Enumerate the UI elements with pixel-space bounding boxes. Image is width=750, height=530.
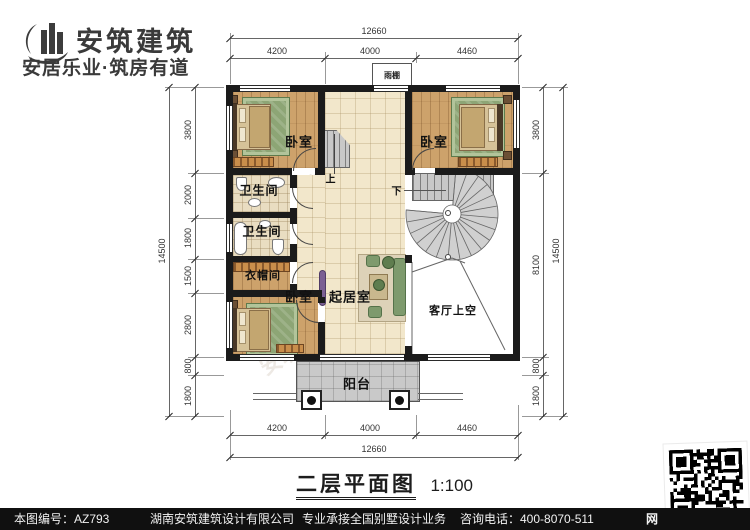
ext-line (522, 173, 549, 174)
door-arc (292, 224, 313, 245)
dresser (276, 344, 304, 353)
wall (315, 168, 325, 175)
dim-value: 14500 (157, 238, 167, 263)
bed-headboard (497, 104, 503, 151)
door-arc (292, 188, 313, 209)
dim-value: 8100 (531, 255, 541, 275)
title-scale: 1:100 (430, 476, 473, 495)
stair-guide-line (334, 134, 335, 174)
railing-line (418, 399, 463, 400)
page-title: 二层平面图 (296, 473, 416, 500)
dim-value: 4200 (267, 423, 287, 433)
window (374, 85, 408, 92)
armchair (366, 255, 380, 267)
ext-line (522, 375, 549, 376)
drawing-sheet: 安筑建筑 安居乐业·筑房有道 安筑建筑 安筑建筑 安筑建筑 hmaz (0, 0, 750, 530)
dim-value: 1500 (183, 266, 193, 286)
wall (318, 92, 325, 168)
wall (405, 255, 412, 263)
brand-tagline: 安居乐业·筑房有道 (22, 53, 189, 80)
nightstand (503, 95, 512, 104)
room-label-bedroom-tl: 卧室 (285, 132, 313, 151)
pillow (239, 127, 246, 142)
wall (405, 92, 412, 168)
pillow (488, 108, 495, 123)
dim-value: 800 (183, 358, 193, 373)
dim-line (230, 38, 518, 39)
title-block: 二层平面图 1:100 (296, 468, 473, 498)
room-label-bath-lower: 卫生间 (242, 223, 281, 240)
railing-line (253, 393, 296, 394)
room-label-bedroom-tr: 卧室 (420, 132, 448, 151)
window (320, 354, 404, 361)
hotline: 咨询电话：400-8070-511 (460, 508, 594, 530)
dim-value: 2000 (183, 185, 193, 205)
room-label-void: 客厅上空 (429, 302, 477, 318)
window (428, 354, 490, 361)
dim-value: 2800 (183, 315, 193, 335)
dim-value: 12660 (361, 26, 386, 36)
window (226, 224, 233, 252)
window (240, 354, 294, 361)
plant (373, 279, 385, 291)
dim-line (230, 457, 518, 458)
wall (318, 297, 325, 303)
dim-value: 1800 (183, 386, 193, 406)
wall (290, 175, 297, 188)
column (389, 390, 410, 410)
toilet (272, 239, 284, 255)
armchair (368, 306, 382, 318)
blanket (461, 107, 485, 148)
dim-value: 3800 (183, 120, 193, 140)
dim-value: 1800 (183, 228, 193, 248)
dim-value: 4460 (457, 423, 477, 433)
window (226, 106, 233, 150)
nightstand (503, 151, 512, 160)
stair-down-label: 下 (392, 183, 403, 198)
dim-value: 14500 (551, 238, 561, 263)
wardrobe (232, 157, 274, 167)
wall (405, 346, 412, 361)
wall (226, 256, 297, 262)
spiral-stair-fan (406, 168, 498, 260)
pillow (239, 312, 246, 326)
blanket (249, 310, 269, 350)
dim-line (230, 435, 518, 436)
window (226, 302, 233, 348)
dim-value: 800 (531, 358, 541, 373)
railing-line (253, 399, 296, 400)
dim-line (169, 87, 170, 416)
dim-line (543, 87, 544, 416)
railing-line (418, 393, 463, 394)
service-text: 专业承接全国别墅设计业务 (302, 508, 446, 530)
room-label-cloak: 衣帽间 (245, 267, 281, 283)
plant (382, 256, 395, 269)
stair-up-label: 上 (326, 171, 337, 186)
dim-line (195, 87, 196, 416)
column (301, 390, 322, 410)
dim-line (563, 87, 564, 416)
dim-value: 4000 (360, 46, 380, 56)
dim-value: 3800 (531, 120, 541, 140)
dim-value: 4200 (267, 46, 287, 56)
blanket (249, 106, 270, 148)
stair-down-line (404, 190, 446, 191)
dim-value: 12660 (361, 444, 386, 454)
window (513, 100, 520, 148)
spiral-stair (402, 160, 517, 264)
sheet-number: 本图编号：AZ793 (14, 508, 109, 530)
sink (248, 198, 261, 207)
window (240, 85, 290, 92)
pillow (239, 330, 246, 344)
wall (226, 212, 297, 218)
room-label-bath-upper: 卫生间 (239, 182, 278, 199)
dim-value: 4000 (360, 423, 380, 433)
window (446, 85, 500, 92)
wall (435, 168, 520, 175)
room-label-balcony: 阳台 (343, 374, 371, 393)
canopy-label: 雨棚 (384, 70, 400, 81)
room-label-living: 起居室 (329, 287, 371, 306)
web-label: 网 (646, 508, 658, 530)
door-arc (292, 262, 313, 283)
footer-bar: 本图编号：AZ793 湖南安筑建筑设计有限公司 专业承接全国别墅设计业务 咨询电… (0, 508, 750, 530)
company-name: 湖南安筑建筑设计有限公司 (150, 508, 294, 530)
wall (226, 168, 292, 175)
dim-line (230, 58, 518, 59)
pillow (239, 108, 246, 123)
pillow (488, 127, 495, 142)
room-label-bedroom-bl: 卧室 (285, 287, 313, 306)
dim-value: 4460 (457, 46, 477, 56)
dim-value: 1800 (531, 386, 541, 406)
